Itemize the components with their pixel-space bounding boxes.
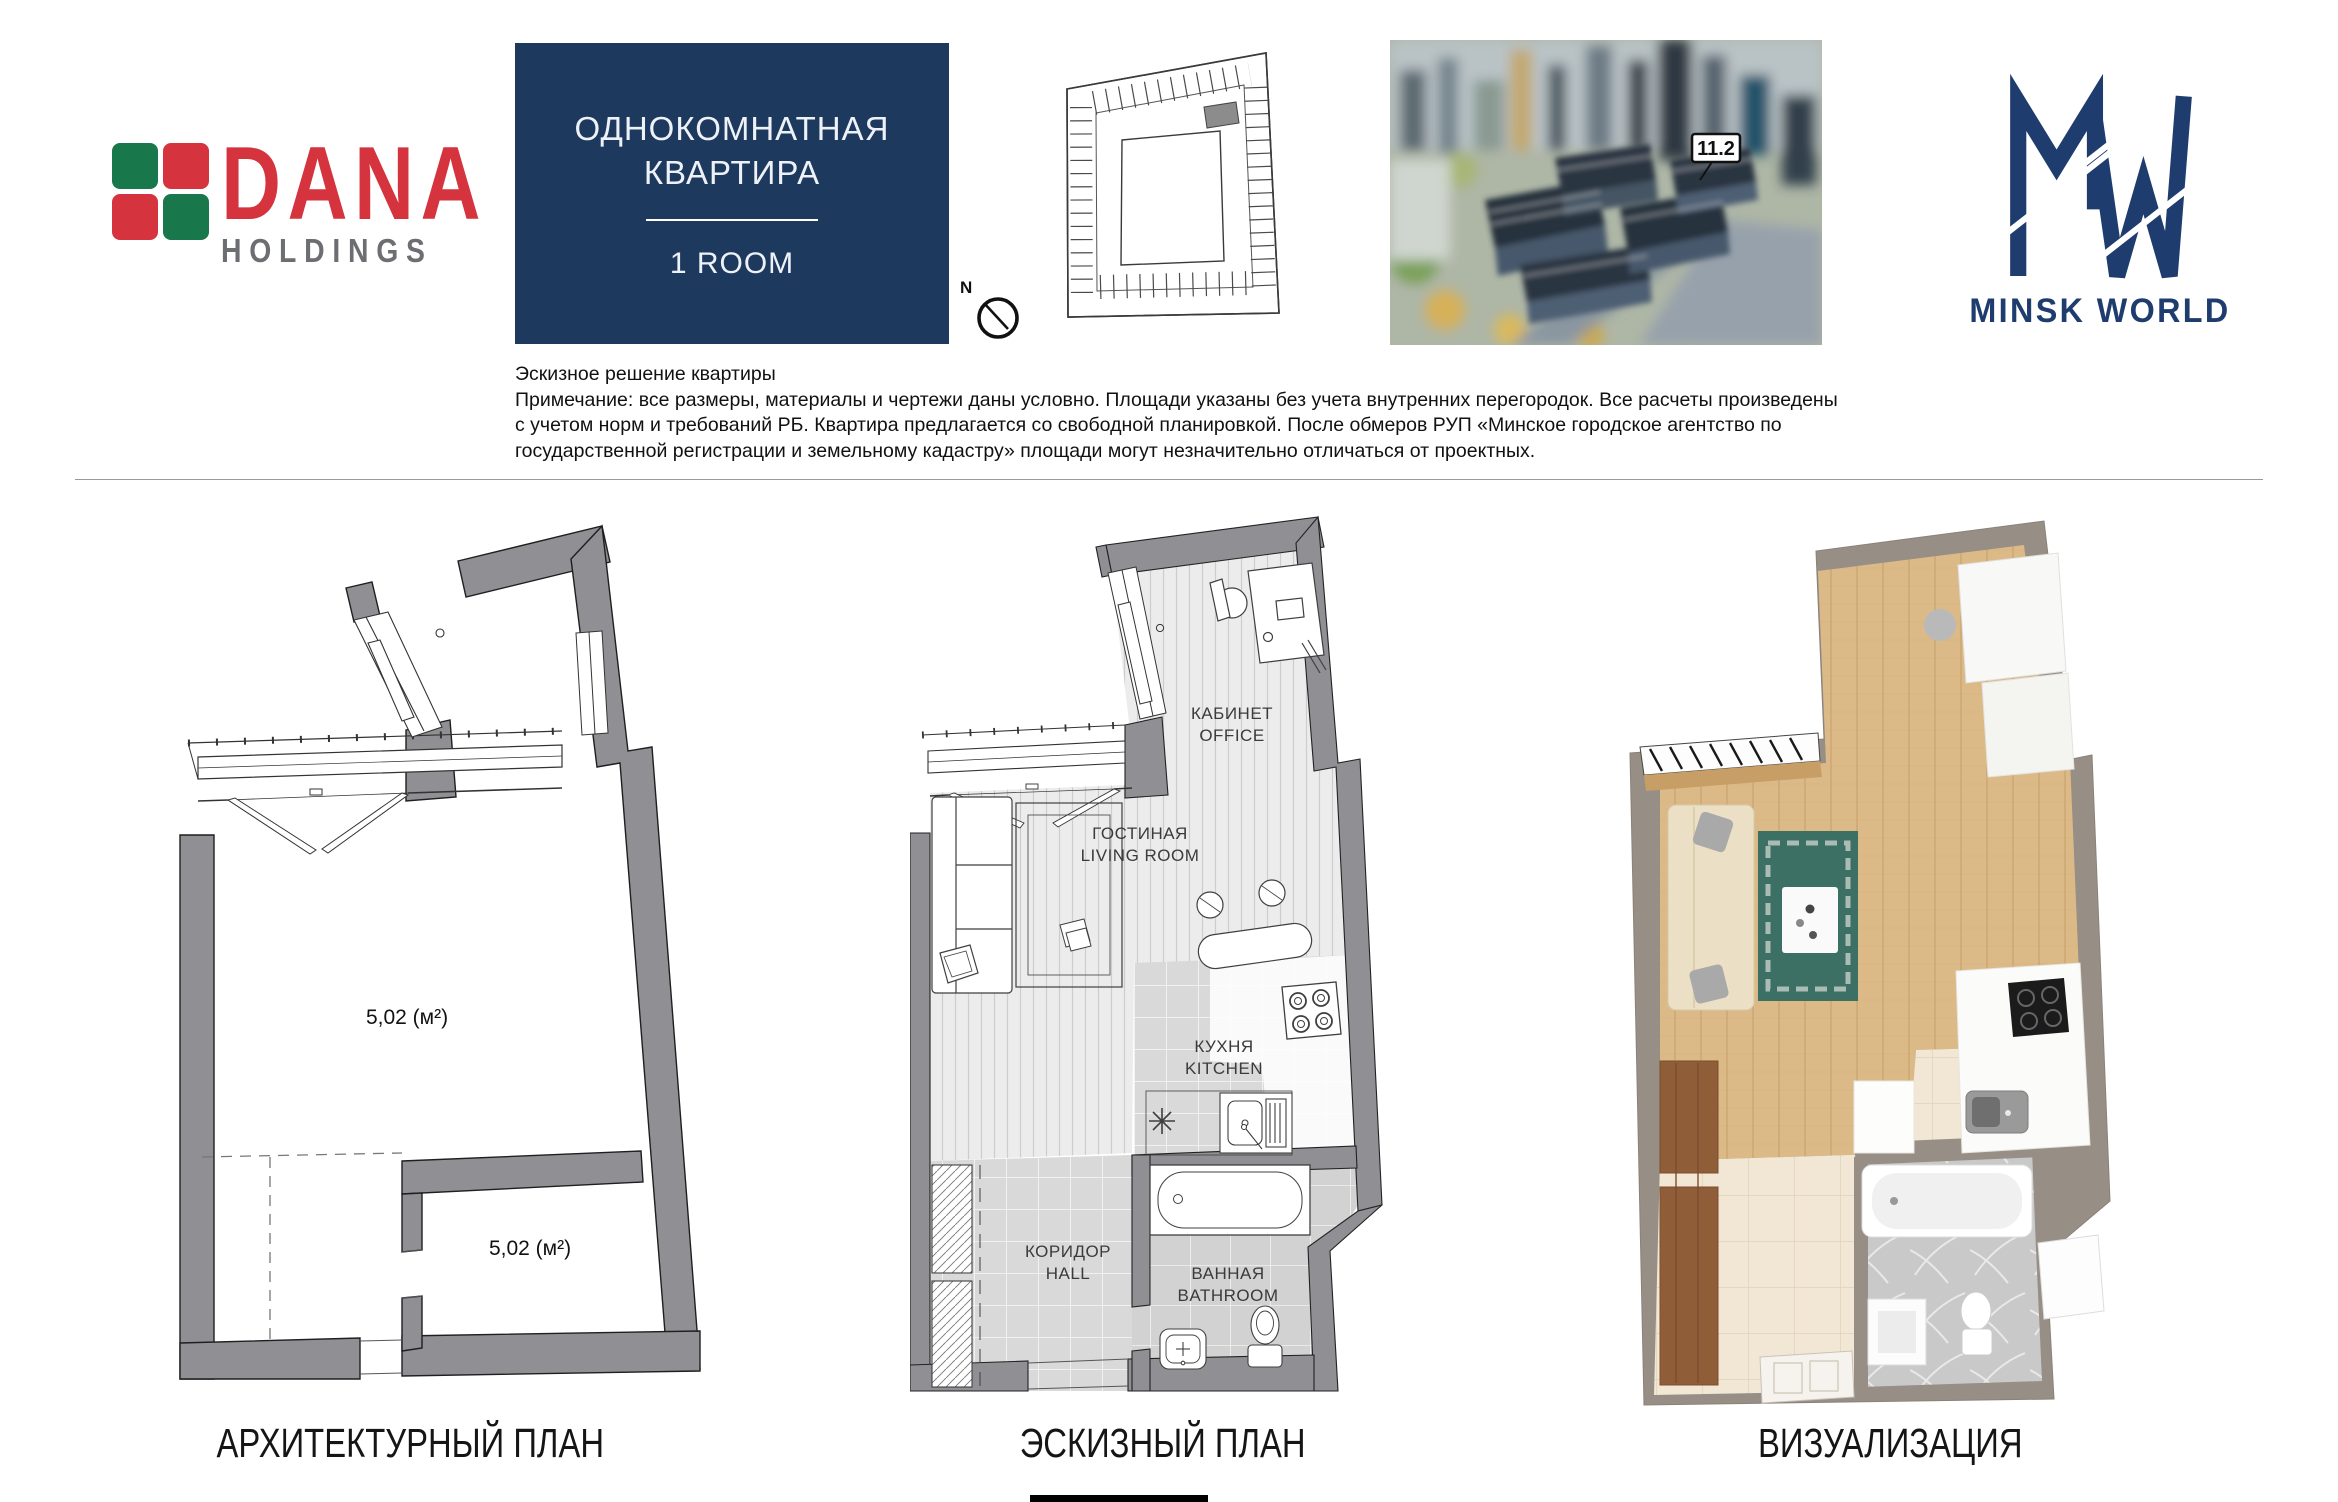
- viz-entry-door: [1760, 1351, 1854, 1403]
- arch-balcony: [188, 731, 562, 779]
- mw-monogram-icon: [2000, 68, 2200, 280]
- living-label-en: LIVING ROOM: [1081, 846, 1200, 865]
- caption-architectural-plan: АРХИТЕКТУРНЫЙ ПЛАН: [110, 1420, 710, 1467]
- minsk-world-text: MINSK WORLD: [1939, 292, 2262, 331]
- arch-living-window-doors: [198, 788, 562, 854]
- disclaimer-line4: государственной регистрации и земельному…: [515, 439, 1845, 465]
- building-number-label: 11.2: [1697, 138, 1735, 160]
- bathroom-sink: [1160, 1329, 1206, 1369]
- sketch-balcony: [922, 725, 1125, 773]
- sketch-plan: КАБИНЕТ OFFICE ГОСТИНАЯ LIVING ROOM КУХН…: [910, 505, 1415, 1420]
- dana-holdings-logo: DANA HOLDINGS: [112, 140, 512, 270]
- disclaimer-block: Эскизное решение квартиры Примечание: вс…: [515, 362, 1845, 464]
- arch-area-label-2: 5,02 (м²): [489, 1237, 571, 1260]
- caption-visualization: ВИЗУАЛИЗАЦИЯ: [1610, 1420, 2170, 1467]
- logo-square-red: [163, 143, 209, 189]
- arch-right-wall-window: [576, 631, 608, 735]
- viz-coffee-table: [1782, 887, 1838, 953]
- viz-toilet: [1961, 1292, 1991, 1330]
- caption-sketch-plan: ЭСКИЗНЫЙ ПЛАН: [910, 1420, 1415, 1467]
- title-line2: КВАРТИРА: [644, 151, 820, 195]
- bathtub: [1150, 1165, 1310, 1235]
- building-floor-site-plan: [1052, 45, 1284, 330]
- sofa: [932, 797, 1012, 993]
- bath-label-en: BATHROOM: [1178, 1286, 1279, 1305]
- minsk-world-logo: MINSK WORLD: [1930, 68, 2270, 331]
- header-divider-line: [75, 479, 2263, 480]
- office-label-en: OFFICE: [1199, 726, 1264, 745]
- disclaimer-line1: Эскизное решение квартиры: [515, 362, 1845, 388]
- office-label-ru: КАБИНЕТ: [1191, 704, 1273, 723]
- dana-logo-text: DANA: [221, 140, 487, 228]
- architectural-plan: 5,02 (м²) 5,02 (м²): [110, 505, 710, 1400]
- viz-rug: [1758, 831, 1858, 1001]
- viz-wardrobes: [1660, 1061, 1718, 1385]
- compass: N: [958, 278, 1028, 348]
- disclaimer-line3: с учетом норм и требований РБ. Квартира …: [515, 413, 1845, 439]
- highlighted-unit: [1204, 102, 1239, 128]
- page-footer-bar: [1030, 1495, 1208, 1502]
- hall-label-ru: КОРИДОР: [1025, 1242, 1111, 1261]
- apartment-title-box: ОДНОКОМНАТНАЯ КВАРТИРА 1 ROOM: [515, 43, 949, 344]
- title-divider: [646, 219, 818, 221]
- visualization-render: [1610, 505, 2170, 1420]
- kitchen-label-en: KITCHEN: [1185, 1059, 1263, 1078]
- hall-label-en: HALL: [1046, 1264, 1091, 1283]
- arch-area-label-1: 5,02 (м²): [366, 1006, 448, 1029]
- logo-square-green: [112, 143, 158, 189]
- dana-logo-squares-icon: [112, 143, 209, 270]
- dana-logo-subtext: HOLDINGS: [221, 232, 507, 270]
- compass-north-label: N: [960, 278, 972, 298]
- logo-square-red: [112, 194, 158, 240]
- aerial-rendering: 11.2: [1390, 40, 1822, 345]
- title-room-count: 1 ROOM: [670, 247, 794, 281]
- disclaimer-line2: Примечание: все размеры, материалы и чер…: [515, 388, 1845, 414]
- office-desk: [1248, 563, 1326, 673]
- logo-square-green: [163, 194, 209, 240]
- bath-label-ru: ВАННАЯ: [1191, 1264, 1264, 1283]
- arch-balcony-door: [354, 612, 444, 737]
- arch-dashed-zones: [202, 1153, 402, 1343]
- viz-sofa: [1668, 805, 1754, 1010]
- stove: [1282, 982, 1341, 1039]
- living-label-ru: ГОСТИНАЯ: [1092, 824, 1188, 843]
- arch-walls: [180, 526, 700, 1379]
- viz-cooktop: [2008, 978, 2069, 1037]
- title-line1: ОДНОКОМНАТНАЯ: [575, 107, 890, 151]
- kitchen-label-ru: КУХНЯ: [1194, 1037, 1253, 1056]
